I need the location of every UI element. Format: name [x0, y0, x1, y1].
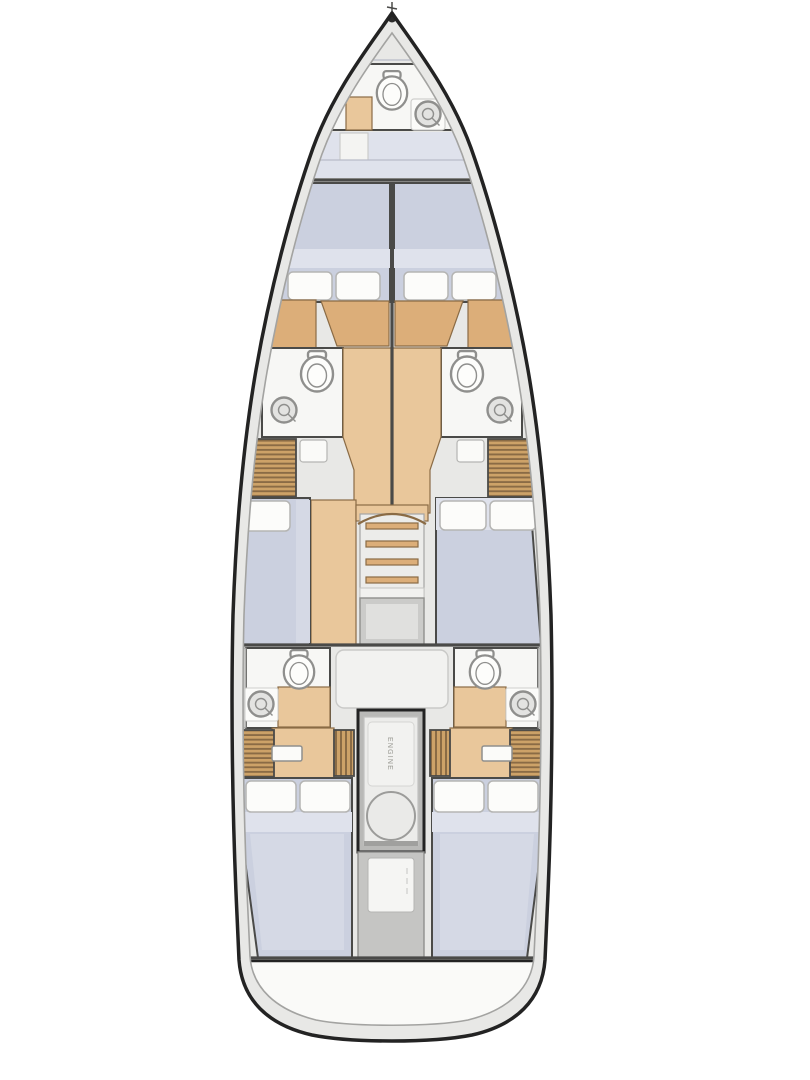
bow-step-box — [340, 133, 368, 160]
bow-cabinet — [346, 97, 372, 130]
port-fwd-head-floor — [262, 348, 343, 437]
pillow — [488, 781, 538, 812]
stbd-aft-berth-band — [432, 812, 544, 832]
pillow — [246, 781, 296, 812]
mid-section — [230, 498, 554, 645]
sink-icon — [511, 692, 536, 717]
stbd-fwd-head-floor — [441, 348, 522, 437]
floorplan-svg: ENGINE — [0, 0, 810, 1080]
mid-utility-box-inner — [366, 604, 418, 639]
stbd-entry-step — [482, 746, 512, 761]
aft-center-landing — [336, 650, 448, 708]
sink-icon — [488, 398, 513, 423]
stbd-aft-steps — [430, 730, 450, 776]
port-entry-step — [272, 746, 302, 761]
pillow — [404, 272, 448, 300]
port-aft-berth-sheet — [250, 834, 344, 950]
engine-compartment: ENGINE — [358, 710, 424, 852]
port-mid-floor — [311, 500, 356, 645]
pillow — [300, 781, 350, 812]
port-aft-berth-band — [240, 812, 352, 832]
port-nightstand — [300, 440, 327, 462]
engine-circle-icon — [367, 792, 415, 840]
sink-icon — [416, 102, 441, 127]
stbd-aft-berth-sheet — [440, 834, 534, 950]
stbd-nightstand — [457, 440, 484, 462]
sink-icon — [249, 692, 274, 717]
stbd-aft-shower-floor — [454, 687, 506, 727]
pillow — [452, 272, 496, 300]
pillow — [440, 501, 486, 530]
pillow — [288, 272, 332, 300]
pillow — [336, 272, 380, 300]
port-aft-shower-floor — [278, 687, 330, 727]
engine-label: ENGINE — [386, 737, 393, 771]
port-aft-steps — [334, 730, 354, 776]
yacht-floorplan: ENGINE — [0, 0, 810, 1080]
bow-berth-shelf — [302, 132, 482, 178]
stern-hatch — [368, 858, 414, 912]
pillow — [434, 781, 484, 812]
forward-cabins-section — [236, 182, 548, 513]
sink-icon — [272, 398, 297, 423]
pillow — [490, 501, 536, 530]
companionway-landing — [360, 588, 424, 598]
port-mid-berth-edge — [296, 500, 310, 643]
